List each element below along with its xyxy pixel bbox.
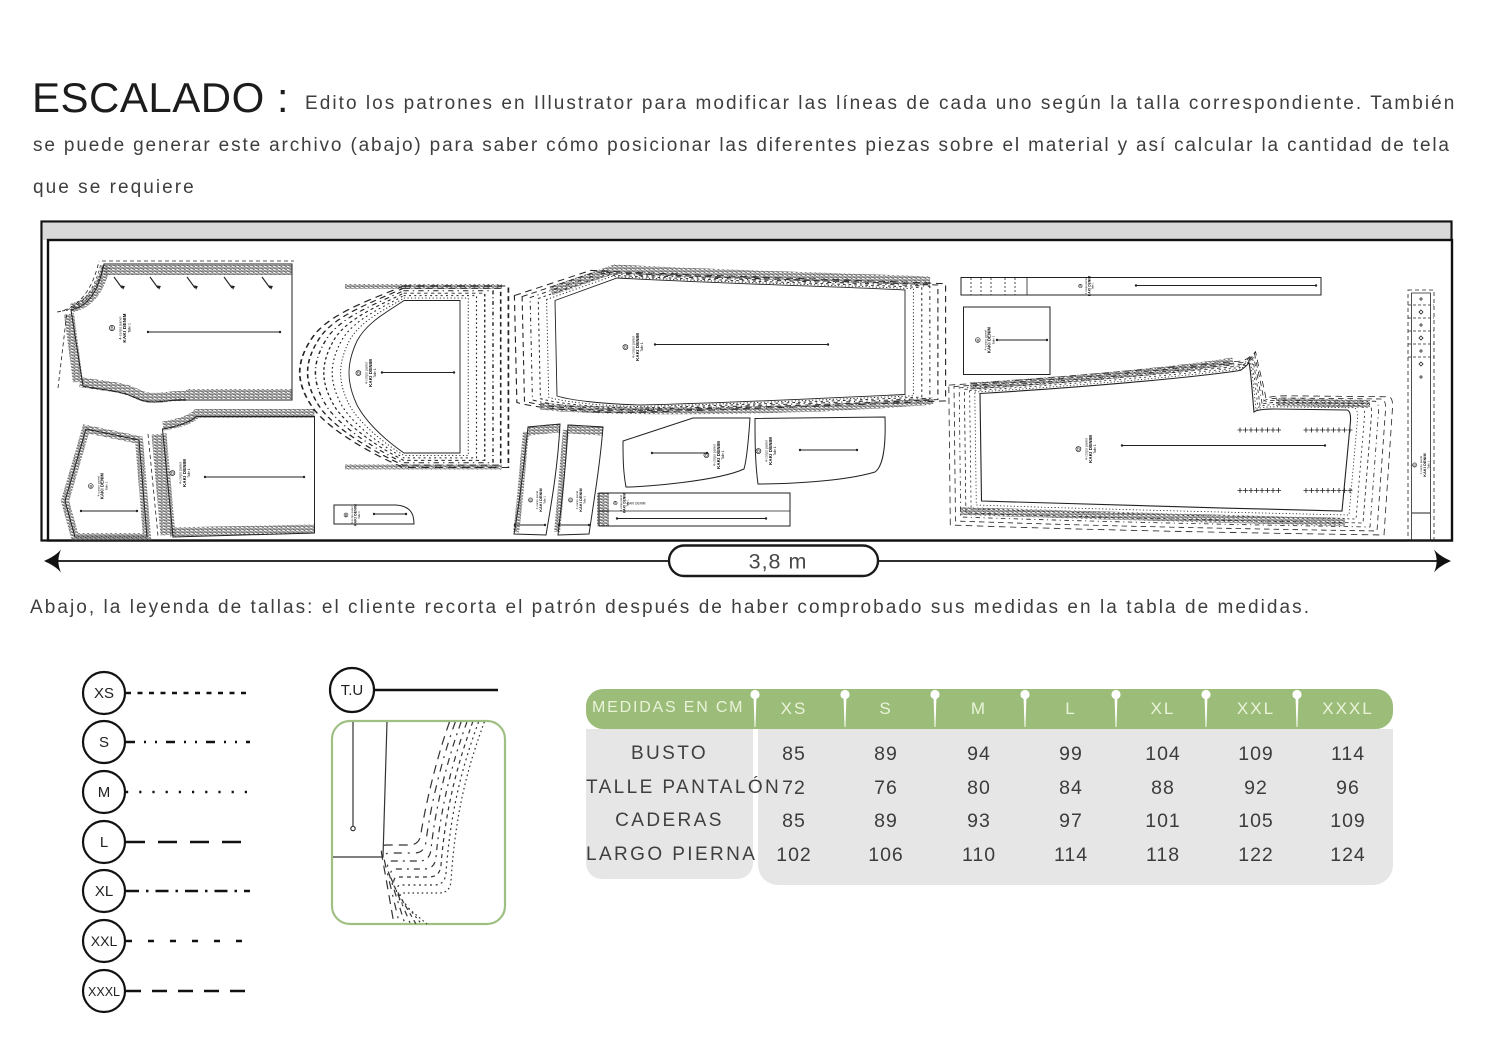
svg-text:T.U: T.U: [341, 682, 364, 699]
svg-text:XL: XL: [95, 883, 113, 900]
svg-text:KAKI DENIM: KAKI DENIM: [627, 502, 646, 506]
svg-text:L: L: [100, 834, 108, 851]
svg-text:S: S: [99, 734, 109, 751]
svg-text:M: M: [98, 784, 111, 801]
svg-text:XS: XS: [94, 685, 114, 702]
svg-text:XXL: XXL: [91, 933, 118, 949]
svg-text:XXXL: XXXL: [88, 985, 120, 999]
svg-text:3,8 m: 3,8 m: [749, 550, 808, 574]
